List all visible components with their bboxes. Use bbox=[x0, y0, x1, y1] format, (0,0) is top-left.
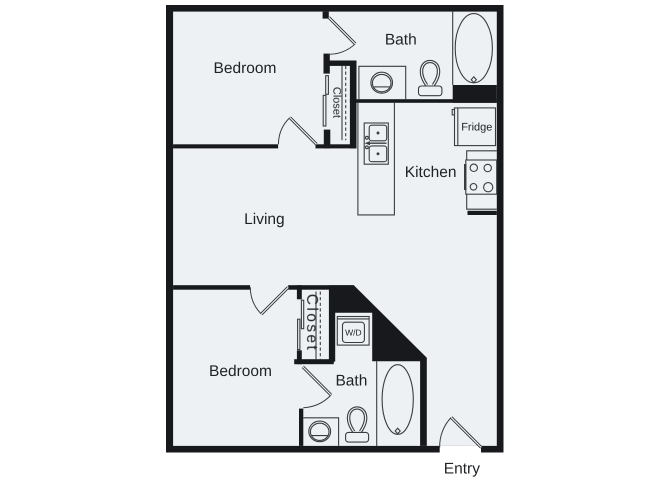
svg-text:Bedroom: Bedroom bbox=[214, 60, 277, 77]
svg-text:Bedroom: Bedroom bbox=[209, 363, 272, 380]
svg-text:Fridge: Fridge bbox=[461, 122, 492, 134]
svg-text:Bath: Bath bbox=[335, 372, 367, 389]
svg-text:Entry: Entry bbox=[444, 461, 480, 478]
svg-text:Bath: Bath bbox=[385, 31, 417, 48]
svg-text:Closet: Closet bbox=[330, 87, 342, 118]
svg-text:Closet: Closet bbox=[303, 294, 320, 352]
svg-text:Kitchen: Kitchen bbox=[405, 164, 457, 181]
svg-text:Living: Living bbox=[244, 211, 285, 228]
svg-text:W/D: W/D bbox=[345, 328, 362, 338]
